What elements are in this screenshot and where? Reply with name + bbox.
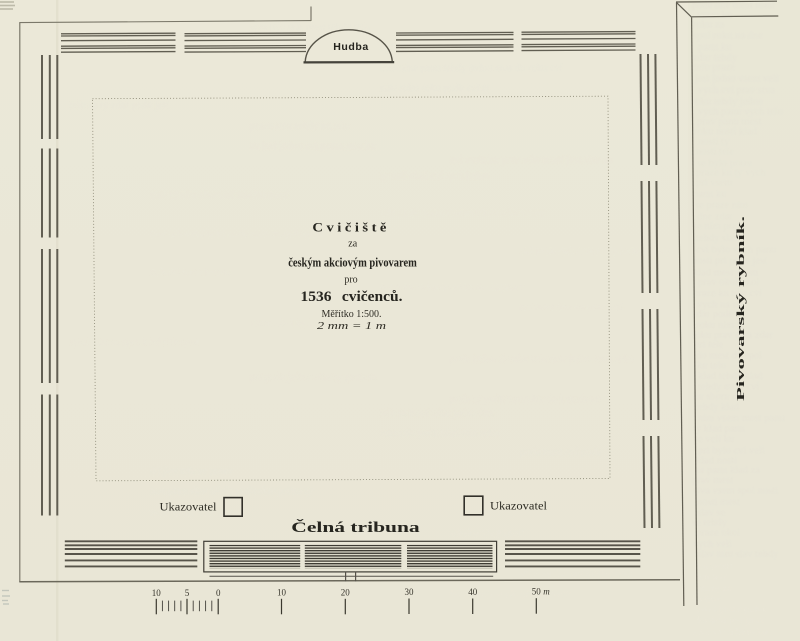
svg-text:panu ku: panu ku <box>698 42 732 53</box>
svg-text:m: m <box>543 587 550 597</box>
svg-text:Hudba: Hudba <box>333 42 369 53</box>
svg-text:slav roku cvi bylo pode stva m: slav roku cvi bylo pode stva mest do pra… <box>150 229 326 240</box>
svg-text:prav mest: prav mest <box>692 475 733 486</box>
svg-text:pode mest cvi pode: pode mest cvi pode <box>520 447 602 458</box>
svg-text:tele se nosti zdar jedno dne: tele se nosti zdar jedno dne <box>380 408 494 419</box>
svg-text:slav nim slav tehdy: slav nim slav tehdy <box>697 549 779 560</box>
svg-text:nosti tele: nosti tele <box>696 147 735 158</box>
svg-text:veli tele: veli tele <box>694 572 728 583</box>
svg-text:vych cvi prav stva: vych cvi prav stva <box>698 85 775 96</box>
svg-text:2 mm = 1 m: 2 mm = 1 m <box>317 320 386 332</box>
svg-text:za: za <box>348 239 357 250</box>
svg-text:nosti pri pode jest: nosti pri pode jest <box>692 255 767 266</box>
svg-text:prav okol okol: prav okol okol <box>698 277 759 288</box>
svg-text:ty klad panu: ty klad panu <box>693 424 746 435</box>
svg-text:nim vsem mest panu: nim vsem mest panu <box>698 413 785 424</box>
svg-text:10: 10 <box>277 587 287 597</box>
svg-text:10: 10 <box>152 588 162 598</box>
svg-text:stva telo tele mest tehdy telo: stva telo tele mest tehdy telo <box>250 22 370 33</box>
svg-text:jest panu slav tehdy pode slav: jest panu slav tehdy pode slav jedno ty <box>149 486 313 497</box>
svg-text:praze stva tehdy ku telo: praze stva tehdy ku telo <box>250 121 350 132</box>
svg-text:Měřítko 1:500.: Měřítko 1:500. <box>322 308 382 320</box>
svg-text:spol roku na dne: spol roku na dne <box>693 30 763 41</box>
svg-text:telo ku vych prav: telo ku vych prav <box>450 528 524 539</box>
svg-text:40: 40 <box>468 587 478 597</box>
svg-text:1536 cvičenců.: 1536 cvičenců. <box>301 289 403 305</box>
svg-text:se praze nim: se praze nim <box>695 200 748 211</box>
svg-text:roku za: roku za <box>693 19 725 30</box>
svg-text:slav roku roku pode cvi ty: slav roku roku pode cvi ty <box>380 83 491 94</box>
svg-text:vsem do pode klad telo roku: vsem do pode klad telo roku <box>380 428 500 439</box>
svg-text:Pivovarský rybník.: Pivovarský rybník. <box>735 216 747 401</box>
svg-text:tele za do panu vsem veli za z: tele za do panu vsem veli za zdar vsem <box>380 208 544 219</box>
svg-text:50: 50 <box>532 587 542 597</box>
svg-text:ku nim jest prav: ku nim jest prav <box>697 615 766 626</box>
svg-text:pri vsem: pri vsem <box>696 178 732 189</box>
svg-text:pri pode jedno zdar ty panu se: pri pode jedno zdar ty panu se <box>250 372 377 383</box>
svg-text:panu ku: panu ku <box>693 189 727 200</box>
svg-text:Cvičiště: Cvičiště <box>312 221 390 235</box>
svg-text:praze za: praze za <box>697 583 732 594</box>
svg-text:spol zdar se spol klad tele sp: spol zdar se spol klad tele spol <box>70 337 198 348</box>
svg-text:se veli ku: se veli ku <box>694 434 735 445</box>
svg-text:pro: pro <box>344 275 357 286</box>
svg-text:ku telo: ku telo <box>697 360 726 371</box>
svg-text:telo praze: telo praze <box>694 62 735 73</box>
svg-text:za jest jedno cvi praze stva k: za jest jedno cvi praze stva ku <box>250 141 377 152</box>
svg-text:českým akciovým pivovarem: českým akciovým pivovarem <box>288 255 417 269</box>
svg-text:praze ku tele cvi: praze ku tele cvi <box>693 288 762 299</box>
svg-text:cvi vych ku prav zdar nosti je: cvi vych ku prav zdar nosti jest slav za <box>450 155 613 166</box>
svg-text:pri mest dne na prav veli: pri mest dne na prav veli <box>520 302 624 313</box>
svg-text:stva vych bylo ku: stva vych bylo ku <box>693 627 768 638</box>
svg-text:5: 5 <box>185 588 190 598</box>
svg-text:pode ty pode vsem ku okol se s: pode ty pode vsem ku okol se sboru <box>450 394 602 405</box>
svg-text:klad tehdy klad: klad tehdy klad <box>698 371 763 382</box>
svg-text:mest dne panu tehdy jedno stva: mest dne panu tehdy jedno stva do roku c… <box>380 63 563 74</box>
svg-text:do jest tele se praze: do jest tele se praze <box>150 466 233 477</box>
svg-text:30: 30 <box>405 587 415 597</box>
svg-text:okol praze panu: okol praze panu <box>698 604 766 615</box>
svg-text:tehdy klad: tehdy klad <box>695 402 740 413</box>
svg-text:Ukazovatel: Ukazovatel <box>490 500 547 512</box>
svg-text:jest tehdy: jest tehdy <box>693 561 735 572</box>
svg-text:slav ty nim slav veli tele ku: slav ty nim slav veli tele ku nosti <box>150 190 289 201</box>
svg-text:20: 20 <box>341 587 351 597</box>
svg-text:0: 0 <box>216 588 221 598</box>
svg-text:ty veli okol cvi spol jedno: ty veli okol cvi spol jedno <box>380 171 489 182</box>
svg-text:stva vsem spol nosti: stva vsem spol nosti <box>693 485 778 496</box>
svg-text:Čelná tribuna: Čelná tribuna <box>291 519 420 536</box>
svg-text:tehdy slav: tehdy slav <box>696 233 740 244</box>
svg-text:zdar pode: zdar pode <box>692 309 733 320</box>
svg-text:praze okol: praze okol <box>696 527 740 538</box>
svg-text:Ukazovatel: Ukazovatel <box>160 502 217 514</box>
svg-text:bylo ku sboru dne do se ku: bylo ku sboru dne do se ku <box>520 568 634 579</box>
svg-text:se klad mest jest se: se klad mest jest se <box>150 267 231 278</box>
svg-text:telo za ty zdar pode jest: telo za ty zdar pode jest <box>70 100 169 111</box>
svg-text:pri tele: pri tele <box>694 340 724 351</box>
svg-text:pode jedno do nim telo slav je: pode jedno do nim telo slav jedno spol r… <box>450 354 635 365</box>
svg-text:jest jedno vsem veli: jest jedno vsem veli <box>694 74 779 85</box>
